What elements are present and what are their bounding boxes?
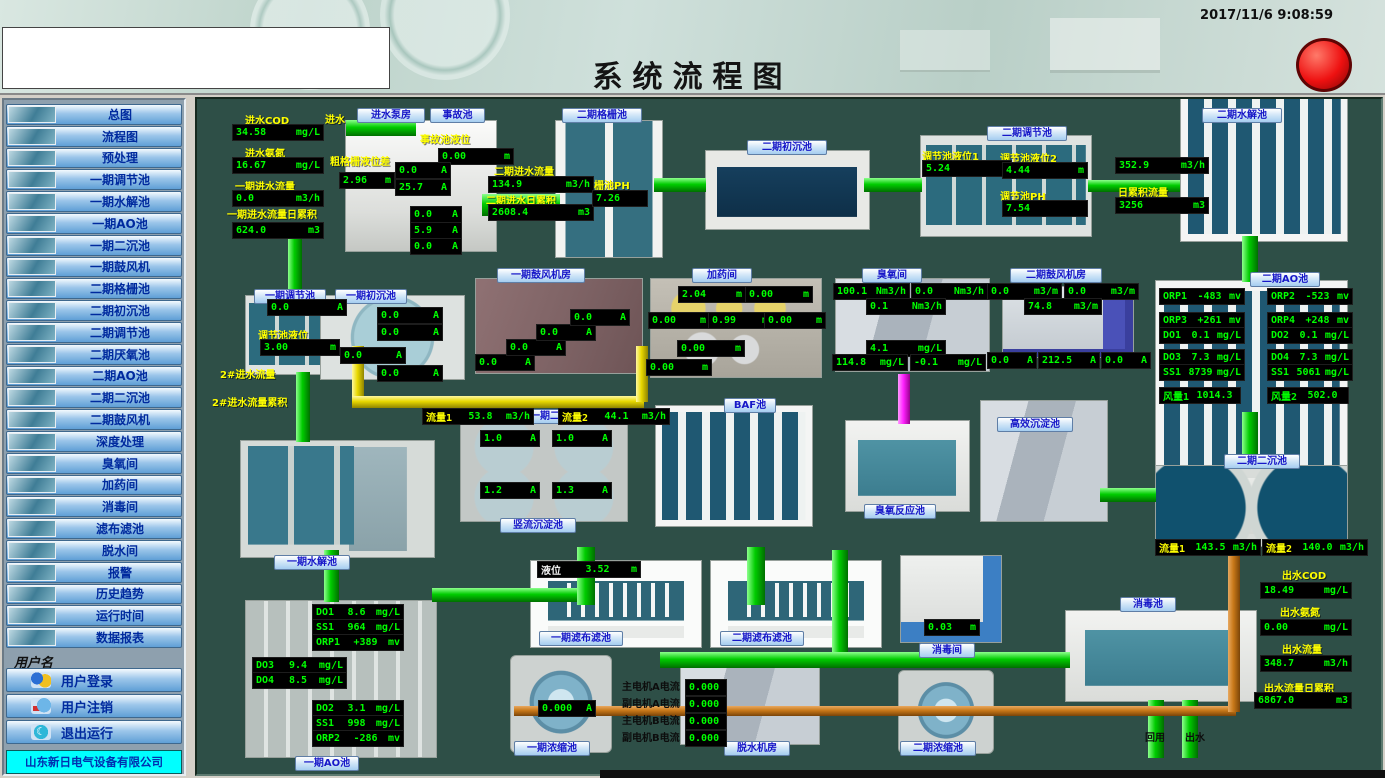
readout-unit: A [1027,355,1033,366]
readout-value: 3.1 [347,703,365,714]
p1-blower-room-button[interactable]: 一期鼓风机房 [497,268,585,283]
readout-value: 0.0 [236,193,254,204]
sidebar-item-p2-aochi[interactable]: 二期AO池 [6,366,182,387]
data-readout: 1.0A [552,430,612,447]
thumbnail-icon [8,150,56,167]
readout-value: 1.2 [484,485,502,496]
data-readout: 114.8mg/L [832,354,908,371]
data-readout: 3256m3 [1115,197,1209,214]
thumbnail-icon [8,607,56,624]
data-readout: SS18739mg/L [1159,364,1245,381]
data-readout: 7.54 [1002,200,1088,217]
data-readout: 0.00m [646,359,712,376]
user-login-button[interactable]: 用户登录 [6,668,182,692]
readout-unit: Nm3/h [954,286,984,297]
sidebar-item-p1-gufengji[interactable]: 一期鼓风机 [6,257,182,278]
user-logout-button[interactable]: 用户注销 [6,694,182,718]
thumbnail-icon [8,128,56,145]
p1-ao-tank-button[interactable]: 一期AO池 [295,756,359,771]
sidebar-item-label: 二期调节池 [59,323,181,342]
dosing-room-button[interactable]: 加药间 [692,268,752,283]
readout-unit: mg/L [376,718,400,729]
readout-value: 4.1 [870,343,888,354]
readout-unit: mv [1229,291,1241,302]
readout-label: DO3 [256,660,274,671]
caption: 出水COD [1282,567,1326,582]
sidebar-item-label: 二期二沉池 [59,388,181,407]
ozone-reaction-tank-button[interactable]: 臭氧反应池 [864,504,936,519]
sidebar-item-p2-yanyangchi[interactable]: 二期厌氧池 [6,344,182,365]
sidebar-menu: 总图流程图预处理一期调节池一期水解池一期AO池一期二沉池一期鼓风机二期格栅池二期… [6,104,182,648]
readout-label: ORP2 [1271,291,1295,302]
thumbnail-icon [8,106,56,123]
readout-value: 9.4 [289,660,307,671]
high-eff-clarifier-button[interactable]: 高效沉淀池 [997,417,1073,432]
thumbnail-icon [8,477,56,494]
readout-unit: mv [1337,291,1349,302]
data-readout: 0.0A [340,347,406,364]
readout-value: 0.000 [689,699,719,710]
data-readout: 0.00m [677,340,745,357]
sidebar-item-label: 脱水间 [59,541,181,560]
sidebar-item-p1-tiaojiechi[interactable]: 一期调节池 [6,169,182,190]
sidebar-item-shuju-baobiao[interactable]: 数据报表 [6,627,182,648]
readout-label: 风量2 [1271,388,1297,403]
p2-thickener-button[interactable]: 二期浓缩池 [900,741,976,756]
exit-run-button[interactable]: ☾ 退出运行 [6,720,182,744]
readout-value: 7.54 [1006,203,1030,214]
data-readout: ORP1+389mv [312,634,404,651]
readout-value: 0.00 [442,151,466,162]
caption: 进水 [325,111,345,126]
sidebar-item-tuoshuijian[interactable]: 脱水间 [6,540,182,561]
data-readout: 624.0m3 [232,222,324,239]
readout-label: 液位 [541,562,561,577]
thumbnail-icon [8,368,56,385]
sidebar-item-yunxing-shijian[interactable]: 运行时间 [6,605,182,626]
readout-value: 2.96 [343,175,367,186]
thumbnail-icon [8,433,56,450]
readout-unit: A [586,327,592,338]
readout-unit: A [337,302,343,313]
sidebar-item-liuchengtu[interactable]: 流程图 [6,126,182,147]
data-readout: 1.0A [480,430,540,447]
thumbnail-icon [8,324,56,341]
vertical-flow-clarifier-button[interactable]: 竖流沉淀池 [500,518,576,533]
green-pipe [747,547,765,605]
sidebar-item-baojing[interactable]: 报警 [6,562,182,583]
p2-secondary-clarifier-button[interactable]: 二期二沉池 [1224,454,1300,469]
data-readout: 0.0m3/h [232,190,324,207]
sidebar-item-chouyangjian[interactable]: 臭氧间 [6,453,182,474]
p2-grid-tank-button[interactable]: 二期格栅池 [562,108,642,123]
data-readout: 0.00m [764,312,826,329]
data-readout: 0.0A [475,354,535,371]
data-readout: 5.24m [922,160,1012,177]
readout-unit: m3 [1336,695,1348,706]
sidebar-item-shendu-chuli[interactable]: 深度处理 [6,431,182,452]
data-readout: DO48.5mg/L [252,672,347,689]
readout-value: +389 [353,637,377,648]
sidebar-item-p1-shuijiechi[interactable]: 一期水解池 [6,191,182,212]
readout-value: -0.1 [914,357,938,368]
readout-value: 0.1 [870,301,888,312]
data-readout: 0.0A [410,238,462,255]
readout-value: 0.99 [712,315,736,326]
readout-unit: mv [1229,315,1241,326]
p2-hydrolysis-tank-button[interactable]: 二期水解池 [1202,108,1282,123]
readout-value: 34.58 [236,127,266,138]
sidebar: 总图流程图预处理一期调节池一期水解池一期AO池一期二沉池一期鼓风机二期格栅池二期… [2,98,186,776]
thumbnail-icon [8,564,56,581]
thumbnail-icon [8,237,56,254]
readout-value: 4.44 [1006,165,1030,176]
readout-unit: mg/L [319,675,343,686]
thumbnail-icon [8,389,56,406]
data-readout: 348.7m3/h [1260,655,1352,672]
sidebar-item-label: 历史趋势 [59,585,181,604]
readout-unit: m [385,175,391,186]
data-readout: 6867.0m3 [1254,692,1352,709]
readout-unit: A [620,312,626,323]
sidebar-item-label: 二期格栅池 [59,279,181,298]
readout-unit: m [816,315,822,326]
green-pipe [660,652,1070,668]
readout-value: 352.9 [1119,160,1149,171]
sidebar-item-label: 二期鼓风机 [59,410,181,429]
readout-label: SS1 [1163,367,1181,378]
readout-value: 0.0 [414,209,432,220]
caption: 主电机A电流 [622,678,680,693]
readout-value: 8739 [1188,367,1212,378]
alarm-indicator-button[interactable] [1296,38,1352,92]
readout-unit: m [702,362,708,373]
readout-value: 3.00 [264,342,288,353]
bottom-edge [600,770,1385,778]
readout-unit: m3/h [1233,542,1257,553]
p1-thickener-button[interactable]: 一期浓缩池 [514,741,590,756]
readout-label: DO4 [1271,352,1289,363]
sidebar-item-lvbu-lvchi[interactable]: 滤布滤池 [6,518,182,539]
readout-unit: mg/L [1325,352,1349,363]
ozone-room-button[interactable]: 臭氧间 [862,268,922,283]
readout-value: 964 [347,622,365,633]
thumbnail-icon [8,586,56,603]
data-readout: 流量2140.0m3/h [1262,539,1368,556]
user-logout-label: 用户注销 [61,697,113,716]
readout-value: 0.000 [542,703,572,714]
readout-unit: m [330,342,336,353]
readout-label: 流量1 [1159,540,1185,555]
readout-label: 流量2 [562,409,588,424]
readout-label: SS1 [1271,367,1289,378]
data-readout: 0.1Nm3/h [866,298,946,315]
readout-value: 74.8 [1028,301,1052,312]
readout-label: 流量1 [426,409,452,424]
data-readout: 流量153.8m3/h [422,408,534,425]
accident-tank-button[interactable]: 事故池 [430,108,485,123]
readout-unit: mg/L [918,343,942,354]
disinfection-room-button[interactable]: 消毒间 [919,643,975,658]
data-readout: 2.96m [339,172,395,189]
readout-unit: Nm3/h [912,301,942,312]
data-readout: 0.0A [570,309,630,326]
readout-value: 0.0 [574,312,592,323]
readout-unit: mg/L [1217,352,1241,363]
data-readout: 0.03m [924,619,980,636]
sidebar-item-p1-aochi[interactable]: 一期AO池 [6,213,182,234]
user-logout-icon [31,698,51,714]
data-readout: 0.0A [1101,352,1151,369]
sidebar-item-label: 消毒间 [59,497,181,516]
readout-unit: m3/m [1074,301,1098,312]
readout-label: 风量1 [1163,388,1189,403]
data-readout: 212.5A [1038,352,1100,369]
readout-unit: m3 [578,207,590,218]
data-readout: 18.49mg/L [1260,582,1352,599]
readout-value: 0.0 [381,310,399,321]
data-readout: 0.000 [685,713,727,730]
caption: 事故池液位 [420,131,470,146]
readout-unit: mg/L [1217,367,1241,378]
readout-value: 0.00 [650,362,674,373]
readout-unit: m [700,315,706,326]
readout-value: 624.0 [236,225,266,236]
green-pipe [432,588,582,602]
scada-window: 系统流程图 2017/11/6 9:08:59 总图流程图预处理一期调节池一期水… [0,0,1385,778]
data-readout: 2.04m [678,286,746,303]
exit-run-icon: ☾ [31,724,51,740]
p2-primary-clarifier-button[interactable]: 二期初沉池 [747,140,827,155]
readout-label: ORP2 [316,733,340,744]
data-readout: 液位3.52m [537,561,641,578]
page-title: 系统流程图 [0,52,1385,95]
data-readout: 0.0A [377,307,443,324]
readout-unit: m3/m [1034,286,1058,297]
sidebar-item-p1-erchenchi[interactable]: 一期二沉池 [6,235,182,256]
readout-value: 0.1 [1299,330,1317,341]
disinfection-tank-button[interactable]: 消毒池 [1120,597,1176,612]
caption: 2#进水流量累积 [212,394,287,409]
sidebar-item-label: 二期厌氧池 [59,345,181,364]
green-pipe [864,178,922,192]
readout-label: ORP4 [1271,315,1295,326]
data-readout: 352.9m3/h [1115,157,1209,174]
orange-pipe [1228,550,1240,712]
readout-unit: Nm3/h [876,286,906,297]
thumbnail-icon [8,520,56,537]
data-readout: ORP1-483mv [1159,288,1245,305]
sidebar-item-label: 数据报表 [59,628,181,647]
readout-unit: mg/L [296,127,320,138]
readout-unit: A [556,342,562,353]
readout-value: 0.00 [1264,622,1288,633]
sidebar-item-label: 预处理 [59,149,181,168]
readout-unit: A [441,182,447,193]
sidebar-item-jiayaojian[interactable]: 加药间 [6,475,182,496]
readout-value: 0.0 [381,368,399,379]
inlet-pump-house-button[interactable]: 进水泵房 [357,108,425,123]
readout-unit: A [525,357,531,368]
thumbnail-icon [8,542,56,559]
readout-value: 0.0 [540,327,558,338]
sidebar-item-label: 滤布滤池 [59,519,181,538]
caption: 粗格栅液位差 [330,153,390,168]
thumbnail-icon [8,629,56,646]
caption: 出水 [1185,729,1205,744]
timestamp: 2017/11/6 9:08:59 [1200,8,1333,23]
thumbnail-icon [8,280,56,297]
thumbnail-icon [8,411,56,428]
data-readout: 134.9m3/h [488,176,594,193]
p2-regulating-tank-button[interactable]: 二期调节池 [987,126,1067,141]
readout-value: 0.00 [768,315,792,326]
data-readout: 0.99m [708,312,772,329]
readout-value: 348.7 [1264,658,1294,669]
caption: 出水流量 [1282,641,1322,656]
readout-unit: m3/h [566,179,590,190]
readout-label: DO1 [1163,330,1181,341]
readout-unit: A [530,433,536,444]
data-readout: 0.0A [377,324,443,341]
readout-unit: m [631,564,637,575]
readout-unit: mg/L [376,607,400,618]
readout-value: 0.00 [681,343,705,354]
data-readout: 0.000 [685,696,727,713]
sidebar-item-p2-erchenchi[interactable]: 二期二沉池 [6,387,182,408]
readout-value: +248 [1305,315,1329,326]
readout-value: 8.5 [289,675,307,686]
readout-unit: mv [1337,315,1349,326]
readout-unit: mg/L [1217,330,1241,341]
user-buttons: 用户登录 用户注销 ☾ 退出运行 [6,668,182,744]
readout-value: 1.3 [556,485,574,496]
readout-value: 0.0 [510,342,528,353]
sidebar-item-label: 加药间 [59,476,181,495]
readout-unit: A [586,703,592,714]
p2-blower-room-button[interactable]: 二期鼓风机房 [1010,268,1102,283]
data-readout: 0.000A [538,700,596,717]
sidebar-item-label: 报警 [59,563,181,582]
sidebar-item-p2-tiaojiechi[interactable]: 二期调节池 [6,322,182,343]
sidebar-item-label: 二期AO池 [59,367,181,386]
data-readout: 74.8m3/m [1024,298,1102,315]
sidebar-item-p2-geshanchi[interactable]: 二期格栅池 [6,278,182,299]
sidebar-item-label: 流程图 [59,127,181,146]
company-name: 山东新日电气设备有限公司 [6,750,182,774]
data-readout: 风量11014.3 [1159,387,1241,404]
readout-unit: mg/L [1324,622,1348,633]
readout-label: DO2 [1271,330,1289,341]
readout-value: 143.5 [1195,542,1225,553]
p2-ao-tank-button[interactable]: 二期AO池 [1250,272,1320,287]
readout-unit: A [452,225,458,236]
readout-unit: mv [388,637,400,648]
sidebar-item-label: 一期水解池 [59,192,181,211]
data-readout: ORP2-286mv [312,730,404,747]
readout-value: 44.1 [604,411,628,422]
readout-value: 0.000 [689,682,719,693]
data-readout: 0.00m [745,286,813,303]
readout-value: 0.0 [479,357,497,368]
baf-tank-button[interactable]: BAF池 [724,398,776,413]
readout-unit: m3/h [506,411,530,422]
readout-unit: A [530,485,536,496]
thumbnail-icon [8,193,56,210]
readout-value: 134.9 [492,179,522,190]
caption: 副电机B电流 [622,729,680,744]
readout-value: 114.8 [836,357,866,368]
readout-value: 2.04 [682,289,706,300]
thumbnail-icon [8,259,56,276]
readout-value: 53.8 [468,411,492,422]
sidebar-item-lishi-qushi[interactable]: 历史趋势 [6,584,182,605]
p1-hydrolysis-tank-button[interactable]: 一期水解池 [274,555,350,570]
readout-value: 3256 [1119,200,1143,211]
readout-label: DO4 [256,675,274,686]
dewatering-room-button[interactable]: 脱水机房 [724,741,790,756]
p2-secondary-clarifier-unit [1155,465,1348,547]
readout-unit: m [970,622,976,633]
readout-value: 25.7 [399,182,423,193]
readout-value: 998 [347,718,365,729]
readout-unit: mg/L [880,357,904,368]
data-readout: -0.1mg/L [910,354,986,371]
sidebar-item-zongtu[interactable]: 总图 [6,104,182,125]
readout-unit: m [1078,165,1084,176]
green-pipe [296,372,310,442]
readout-unit: m [504,151,510,162]
data-readout: 5.9A [410,222,462,239]
user-login-icon [31,672,51,688]
thumbnail-icon [8,346,56,363]
data-readout: 25.7A [395,179,451,196]
data-readout: 0.0A [987,352,1037,369]
exit-run-label: 退出运行 [61,723,113,742]
readout-value: 0.0 [414,241,432,252]
data-readout: 0.000 [685,730,727,747]
readout-value: 8.6 [347,607,365,618]
sidebar-item-p2-chuchenchi[interactable]: 二期初沉池 [6,300,182,321]
readout-unit: A [602,485,608,496]
sidebar-item-yuchuli[interactable]: 预处理 [6,148,182,169]
readout-unit: mg/L [319,660,343,671]
sidebar-item-label: 二期初沉池 [59,301,181,320]
readout-value: 1.0 [484,433,502,444]
data-readout: 风量2502.0 [1267,387,1349,404]
p1-cloth-filter-button[interactable]: 一期滤布滤池 [539,631,623,646]
readout-unit: m3/h [296,193,320,204]
sidebar-item-label: 一期调节池 [59,170,181,189]
readout-unit: mg/L [376,622,400,633]
p2-cloth-filter-button[interactable]: 二期滤布滤池 [720,631,804,646]
readout-value: 0.0 [1068,286,1086,297]
readout-label: DO1 [316,607,334,618]
sidebar-item-p2-gufengji[interactable]: 二期鼓风机 [6,409,182,430]
caption: 副电机A电流 [622,695,680,710]
sidebar-item-xiaodujian[interactable]: 消毒间 [6,496,182,517]
readout-value: 0.0 [271,302,289,313]
data-readout: 4.44m [1002,162,1088,179]
data-readout: 3.00m [260,339,340,356]
sidebar-item-label: 运行时间 [59,606,181,625]
readout-value: 0.03 [928,622,952,633]
caption: 一期进水流量日累积 [227,206,317,221]
caption: 主电机B电流 [622,712,680,727]
readout-value: 0.0 [991,286,1009,297]
p2-primary-clarifier-unit [705,150,870,230]
readout-value: 16.67 [236,160,266,171]
